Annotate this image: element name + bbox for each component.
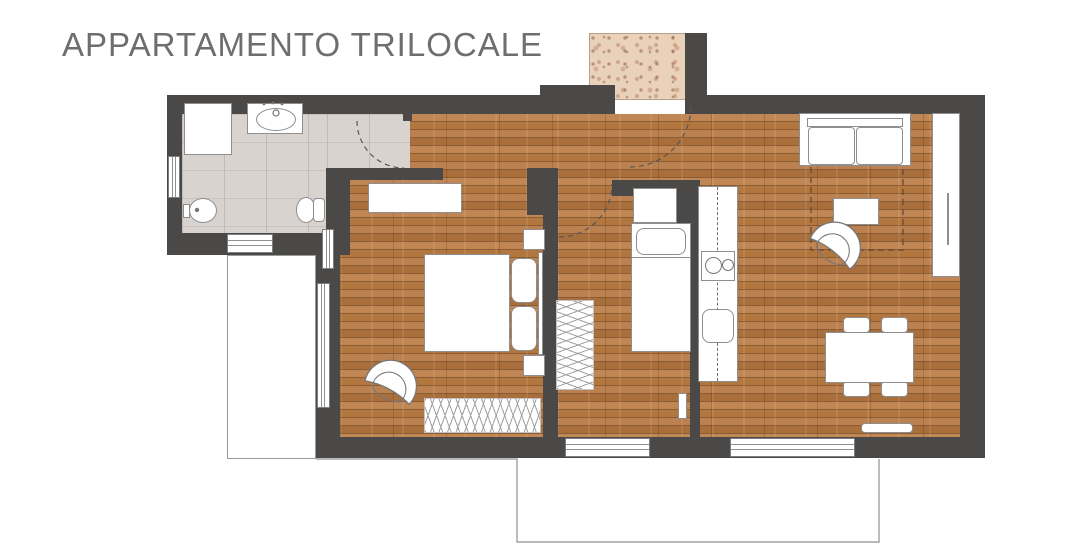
double-bed: [424, 254, 510, 352]
single-bed-pillow: [636, 228, 686, 255]
sink-basin: [256, 108, 296, 131]
window-living-bottom: [730, 438, 855, 457]
tall-cabinet: [932, 113, 960, 277]
bed-headboard: [538, 252, 543, 355]
wall-top-right: [685, 95, 985, 114]
shower: [184, 103, 232, 155]
cabinet-handle: [947, 193, 949, 245]
pillow-right: [511, 306, 537, 351]
wall-bottom: [316, 437, 985, 458]
radiator-bedroom2: [678, 393, 687, 419]
balcony-door-bedroom1: [317, 283, 330, 408]
wall-top-left: [167, 95, 615, 114]
wall-right: [960, 95, 985, 458]
dining-chair-top-right: [881, 317, 908, 333]
radiator-living: [861, 423, 913, 433]
burner-large: [705, 257, 722, 274]
dining-table: [825, 332, 914, 383]
wall-top-notch: [540, 85, 615, 97]
nightstand-bottom: [523, 355, 545, 376]
pillow-left: [511, 258, 537, 303]
coffee-table: [833, 198, 879, 225]
dresser-bedroom1: [368, 183, 462, 213]
dining-chair-bottom-right: [881, 381, 908, 397]
bathroom-vestibule-floor: [327, 114, 410, 168]
wall-bathroom-door-jamb: [403, 95, 412, 121]
single-bed-divider: [631, 257, 691, 258]
kitchen-sink: [702, 309, 734, 343]
window-bathroom-bottom: [227, 234, 273, 253]
sofa-cushion-left: [808, 127, 855, 165]
dining-chair-bottom-left: [843, 381, 870, 397]
wall-kitchen-column: [676, 186, 699, 223]
nightstand-top: [523, 229, 545, 250]
closet-bedroom1: [424, 398, 541, 433]
dining-chair-top-left: [843, 317, 870, 333]
floor-plan: [0, 0, 1080, 559]
sofa-cushion-right: [856, 127, 903, 165]
burner-small: [722, 259, 734, 271]
sofa-back: [807, 118, 903, 127]
balcony-floor: [227, 255, 316, 459]
wall-bedroom1-top: [340, 168, 443, 180]
bidet: [189, 198, 217, 223]
window-bedroom2-bottom: [565, 438, 650, 457]
toilet-tank: [313, 198, 325, 222]
window-bedroom1-left: [322, 229, 334, 269]
window-bathroom-left: [168, 156, 180, 198]
kitchen-counter: [698, 186, 738, 382]
closet-bedroom2: [556, 300, 594, 390]
floor-plan-page: APPARTAMENTO TRILOCALE: [0, 0, 1080, 559]
wardrobe-bedroom2: [633, 188, 677, 223]
kitchen-counter-dash: [717, 187, 718, 381]
